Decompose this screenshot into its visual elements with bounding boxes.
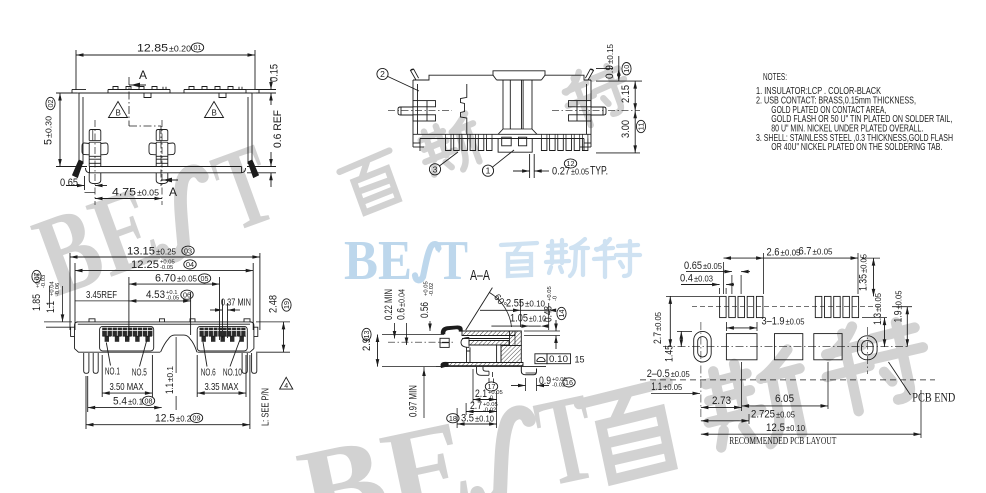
svg-text:±0.05: ±0.05 (654, 311, 663, 331)
svg-text:±0.10: ±0.10 (786, 424, 806, 433)
svg-text:2.73: 2.73 (712, 395, 731, 407)
svg-text:6.70: 6.70 (155, 273, 176, 285)
svg-text:2.15: 2.15 (620, 85, 632, 103)
svg-text:B: B (212, 109, 217, 118)
svg-text:16: 16 (565, 378, 573, 387)
svg-text:1.9: 1.9 (893, 311, 905, 323)
svg-text:1.1: 1.1 (651, 381, 662, 393)
svg-text:2.48: 2.48 (268, 295, 280, 313)
svg-text:A: A (139, 68, 147, 82)
svg-text:±0.05: ±0.05 (671, 370, 691, 379)
svg-text:±0.05: ±0.05 (895, 290, 904, 310)
svg-text:0.97 MIN: 0.97 MIN (408, 385, 420, 417)
svg-text:OR 40U" NICKEL PLATED ON THE S: OR 40U" NICKEL PLATED ON THE SOLDERING T… (771, 142, 942, 153)
svg-text:±0.05: ±0.05 (703, 262, 723, 271)
svg-text:RECOMMENDED PCB LAYOUT: RECOMMENDED PCB LAYOUT (729, 435, 836, 447)
svg-text:±0.05: ±0.05 (860, 253, 869, 273)
svg-text:0.6 REF: 0.6 REF (272, 110, 284, 148)
svg-text:12.25: 12.25 (131, 259, 159, 271)
svg-text:±0.05: ±0.05 (874, 292, 883, 312)
svg-text:±0.05: ±0.05 (137, 189, 160, 198)
svg-text:02: 02 (46, 100, 55, 108)
svg-text:±0.05: ±0.05 (177, 275, 198, 284)
svg-text:1: 1 (486, 166, 491, 176)
svg-text:5.4: 5.4 (113, 396, 127, 408)
svg-text:3–1.9: 3–1.9 (762, 316, 785, 328)
svg-text:PCB END: PCB END (912, 391, 955, 405)
svg-text:0.10: 0.10 (549, 354, 568, 365)
svg-text:B: B (116, 109, 121, 118)
svg-text:06: 06 (183, 290, 191, 299)
svg-text:15: 15 (575, 355, 585, 366)
svg-text:18: 18 (449, 414, 457, 423)
svg-text:4.53: 4.53 (146, 289, 165, 301)
svg-text:2.7: 2.7 (652, 332, 664, 344)
svg-text:T: T (437, 230, 468, 292)
svg-text:3.00: 3.00 (620, 120, 632, 138)
svg-text:0.48: 0.48 (543, 306, 555, 322)
svg-text:±0.2: ±0.2 (176, 415, 191, 424)
svg-text:±0.30: ±0.30 (45, 115, 54, 138)
svg-text:1.1: 1.1 (45, 301, 57, 313)
svg-text:3.35 MAX: 3.35 MAX (205, 381, 239, 393)
svg-text:0.4: 0.4 (680, 273, 693, 285)
svg-text:-0.06: -0.06 (55, 283, 61, 296)
svg-text:3.50 MAX: 3.50 MAX (110, 381, 144, 393)
svg-text:0.9: 0.9 (604, 65, 616, 79)
svg-text:NO.10: NO.10 (223, 368, 242, 379)
svg-text:2.6: 2.6 (767, 247, 780, 259)
svg-text:14: 14 (557, 310, 566, 318)
svg-text:±0.04: ±0.04 (398, 288, 407, 307)
svg-text:08: 08 (145, 396, 153, 405)
svg-text:1.45: 1.45 (664, 345, 676, 362)
svg-text:0.56: 0.56 (419, 302, 431, 318)
svg-text:-0.05: -0.05 (160, 265, 173, 271)
svg-text:±0.20: ±0.20 (169, 45, 192, 54)
svg-text:2.55: 2.55 (506, 298, 524, 310)
svg-text:0.27: 0.27 (552, 166, 570, 178)
svg-text:-0.03: -0.03 (41, 275, 47, 288)
svg-text:12.5: 12.5 (766, 422, 785, 434)
svg-text:NO.6: NO.6 (201, 368, 216, 379)
svg-text:±0.25: ±0.25 (156, 247, 177, 256)
svg-text:±0.05: ±0.05 (776, 411, 796, 420)
svg-text:11: 11 (637, 123, 646, 131)
svg-text:0.22 MIN: 0.22 MIN (383, 289, 395, 320)
svg-text:19: 19 (282, 301, 291, 309)
svg-text:12.85: 12.85 (137, 43, 168, 55)
svg-text:1.35: 1.35 (858, 274, 870, 291)
svg-text:2: 2 (380, 69, 385, 79)
svg-text:±0.05: ±0.05 (813, 248, 834, 257)
svg-text:12.5: 12.5 (155, 413, 175, 425)
svg-text:A–A: A–A (470, 268, 490, 284)
svg-text:1.1: 1.1 (164, 383, 176, 394)
svg-text:1.05: 1.05 (510, 313, 528, 325)
svg-text:2.725: 2.725 (751, 409, 775, 421)
svg-text:04: 04 (186, 260, 194, 269)
svg-text:13.15: 13.15 (127, 245, 155, 257)
svg-text:±0.1: ±0.1 (128, 398, 143, 407)
svg-text:10: 10 (622, 65, 631, 73)
svg-text:±0.05: ±0.05 (571, 168, 590, 177)
svg-text:-0: -0 (488, 396, 493, 402)
svg-text:2.7: 2.7 (470, 400, 482, 412)
svg-text:05: 05 (201, 274, 209, 283)
svg-text:NO.1: NO.1 (105, 366, 120, 377)
svg-text:17: 17 (488, 382, 496, 391)
svg-text:09: 09 (193, 414, 201, 423)
svg-text:2.1: 2.1 (475, 388, 487, 400)
svg-text:0.6: 0.6 (396, 308, 408, 320)
svg-text:TYP.: TYP. (590, 166, 608, 178)
svg-text:1.3: 1.3 (872, 313, 884, 325)
svg-text:2.9: 2.9 (361, 338, 373, 351)
svg-text:NO.5: NO.5 (132, 368, 147, 379)
svg-text:±0.15: ±0.15 (606, 43, 615, 64)
svg-text:5: 5 (43, 139, 55, 145)
svg-text:0.37 MIN: 0.37 MIN (221, 297, 251, 309)
svg-text:3.45REF: 3.45REF (86, 289, 117, 301)
svg-text:-0.02: -0.02 (429, 283, 435, 296)
svg-text:2–0.5: 2–0.5 (647, 368, 670, 380)
svg-text:NOTES:: NOTES: (763, 72, 787, 83)
svg-text:A: A (169, 185, 177, 199)
svg-text:±0.1: ±0.1 (166, 366, 175, 382)
svg-text:BE: BE (344, 230, 412, 292)
svg-text:±0.05: ±0.05 (781, 249, 802, 258)
svg-text:13: 13 (362, 331, 371, 339)
svg-text:3.5: 3.5 (461, 412, 474, 424)
svg-text:±0.03: ±0.03 (694, 275, 714, 284)
svg-text:3: 3 (433, 164, 438, 174)
svg-text:L: SEE P/N: L: SEE P/N (260, 388, 272, 426)
svg-text:±0.10: ±0.10 (475, 414, 495, 423)
svg-text:0.65: 0.65 (684, 260, 702, 272)
svg-text:1.85: 1.85 (31, 294, 43, 311)
svg-text:03: 03 (184, 246, 192, 255)
svg-text:0.15: 0.15 (269, 64, 281, 82)
svg-text:-0.02: -0.02 (483, 408, 496, 414)
svg-text:-0.05: -0.05 (166, 296, 179, 302)
svg-text:4: 4 (284, 383, 288, 390)
svg-text:0.9: 0.9 (539, 375, 551, 387)
svg-text:4.75: 4.75 (112, 187, 136, 199)
svg-text:0.65: 0.65 (60, 177, 78, 189)
svg-text:-0: -0 (553, 296, 559, 301)
svg-text:01: 01 (194, 43, 202, 52)
svg-text:±0.05: ±0.05 (786, 318, 806, 327)
svg-text:6.05: 6.05 (775, 393, 794, 405)
svg-text:±0.05: ±0.05 (663, 383, 683, 392)
